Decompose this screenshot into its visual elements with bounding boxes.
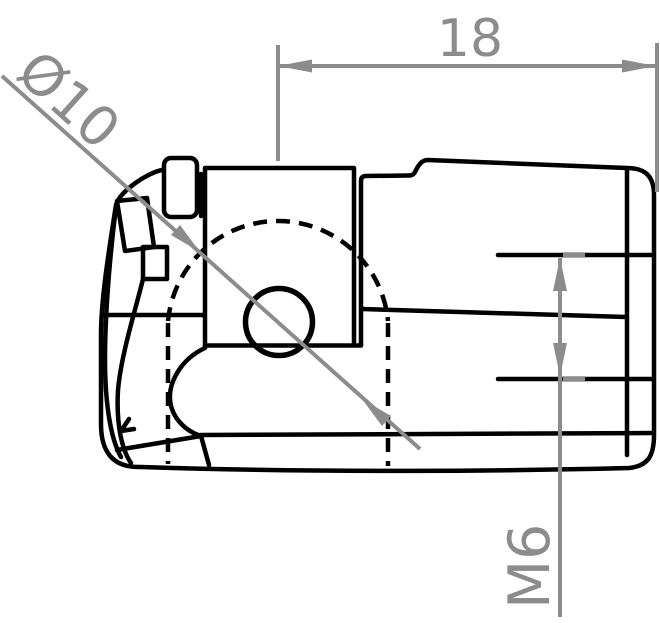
clamp-block: [205, 168, 354, 347]
dim-diameter-label: Ø10: [5, 38, 132, 161]
socket-mouth-arc: [170, 348, 205, 436]
nose-square-face: [143, 247, 167, 279]
dimension-18: 18: [278, 9, 657, 192]
dim-m6-arrow-down: [553, 343, 567, 376]
technical-drawing: 18 Ø10 M6: [0, 0, 660, 623]
dim-m6-label: M6: [497, 524, 563, 609]
body-bottom-tangent-line: [201, 433, 652, 435]
top-tab: [164, 158, 197, 217]
nose-slant-left: [117, 436, 201, 450]
nose-long-curve: [118, 279, 143, 463]
technical-drawing-canvas: 18 Ø10 M6: [0, 0, 660, 623]
dim-m6-arrow-up: [553, 258, 567, 291]
dim-18-arrow-left: [278, 60, 312, 73]
nose-slant-right: [201, 436, 209, 465]
nose-notch: [121, 419, 134, 431]
dimension-thread-m6: M6: [497, 255, 585, 617]
body-top-tangent-line: [362, 309, 626, 317]
dimension-ball-diameter: Ø10: [2, 38, 420, 449]
dim-18-arrow-right: [622, 60, 656, 73]
dim-18-label: 18: [437, 9, 503, 69]
part-geometry: [101, 158, 654, 471]
